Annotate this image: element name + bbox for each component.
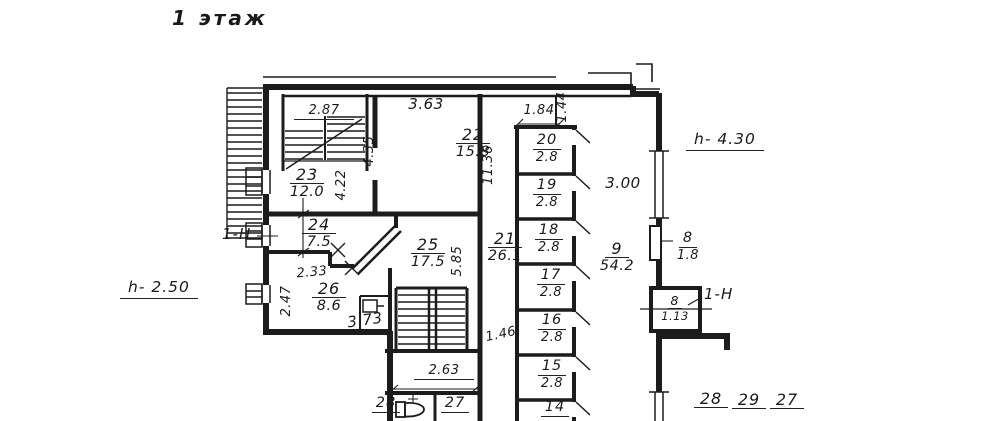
room-label-25: 25 17.5 <box>401 236 455 271</box>
room-label-28: 28 <box>370 393 402 414</box>
diagonal-passage <box>352 225 401 274</box>
room-number: 9 <box>605 240 628 258</box>
room-number: 29 <box>732 391 766 409</box>
room-label-27-bottom: 27 <box>766 391 808 410</box>
room-area: 2.8 <box>531 331 573 345</box>
room-number: 24 <box>302 216 336 234</box>
left-hatch-strip <box>227 88 263 238</box>
room-number: 21 <box>488 230 522 248</box>
room-label-19: 19 2.8 <box>526 175 568 210</box>
dimension-1-44: 1.44 <box>556 86 570 128</box>
room-label-21: 21 26.1 <box>482 230 528 265</box>
room-area: 2.8 <box>526 196 568 210</box>
room-number: 23 <box>290 166 324 184</box>
room-area: 2.8 <box>528 241 570 255</box>
room-label-23: 23 12.0 <box>281 166 333 201</box>
room-number: 28 <box>694 390 728 408</box>
dimension-11-36: 11.36 <box>482 134 496 196</box>
dimension-2-87: 2.87 <box>294 104 354 120</box>
room-label-18: 18 2.8 <box>528 220 570 255</box>
room-label-24: 24 7.5 <box>296 216 342 251</box>
room-label-28-bottom: 28 <box>690 390 732 409</box>
room-number: 28 <box>372 396 400 413</box>
room-number: 27 <box>441 396 469 413</box>
floor-title: 1 этаж <box>172 8 268 30</box>
room-area: 17.5 <box>401 255 455 271</box>
room-number: 8 <box>668 294 683 309</box>
room-label-27: 27 <box>436 393 474 414</box>
dimension-2-63: 2.63 <box>414 364 474 380</box>
duct-shaft <box>650 226 661 260</box>
ceiling-height-left: h- 2.50 <box>120 279 198 299</box>
room-area: 2.8 <box>531 377 573 391</box>
room-number: 15 <box>538 359 566 376</box>
room-area: 2.8 <box>530 286 572 300</box>
room-label-8-lower: 8 1.13 <box>656 291 694 322</box>
unit-mark-right: 1-Н <box>704 286 733 302</box>
room-area: 1.13 <box>656 310 694 322</box>
unit-mark-left: 1-Н <box>222 226 251 242</box>
room-area: 12.0 <box>281 185 333 201</box>
dimension-3-63: 3.63 <box>398 96 454 112</box>
dimension-1-84: 1.84 <box>518 104 560 118</box>
room-number: 20 <box>533 133 561 150</box>
room-number: 16 <box>538 313 566 330</box>
room-number: 18 <box>535 223 563 240</box>
room-label-8-upper: 8 1.8 <box>670 228 706 263</box>
room-label-17: 17 2.8 <box>530 265 572 300</box>
room-area: 2.8 <box>526 151 568 165</box>
room-number: 19 <box>533 178 561 195</box>
dimension-4-35: 4.35 <box>363 125 377 177</box>
room-area: 1.8 <box>670 249 706 263</box>
room-label-14: 14 <box>534 397 576 418</box>
ceiling-height-right: h- 4.30 <box>686 131 764 151</box>
room-label-16: 16 2.8 <box>531 310 573 345</box>
dimension-2-47: 2.47 <box>280 276 294 326</box>
staircase-middle <box>396 288 467 351</box>
room-number: 17 <box>537 268 565 285</box>
room-area: 54.2 <box>588 259 646 275</box>
room-label-29-bottom: 29 <box>728 391 770 410</box>
room-area: 7.5 <box>296 235 342 251</box>
dimension-4-22: 4.22 <box>335 159 349 211</box>
room-label-15: 15 2.8 <box>531 356 573 391</box>
room-area: 26.1 <box>482 249 528 265</box>
room-label-20: 20 2.8 <box>526 130 568 165</box>
room-number: 25 <box>411 236 445 254</box>
room-number: 14 <box>541 400 569 417</box>
floor-plan-drawing <box>0 0 1000 421</box>
room-label-9: 9 54.2 <box>588 240 646 275</box>
room-number: 26 <box>312 280 346 298</box>
room-label-26: 26 8.6 <box>304 280 354 315</box>
room-number: 8 <box>679 231 697 248</box>
room-number: 27 <box>770 391 804 409</box>
dimension-3-00: 3.00 <box>594 175 652 191</box>
dimension-5-85: 5.85 <box>451 235 465 287</box>
floor-plan-page: 1 этаж h- 4.30 h- 2.50 1-Н 1-Н 22 15.8 2… <box>0 0 1000 421</box>
